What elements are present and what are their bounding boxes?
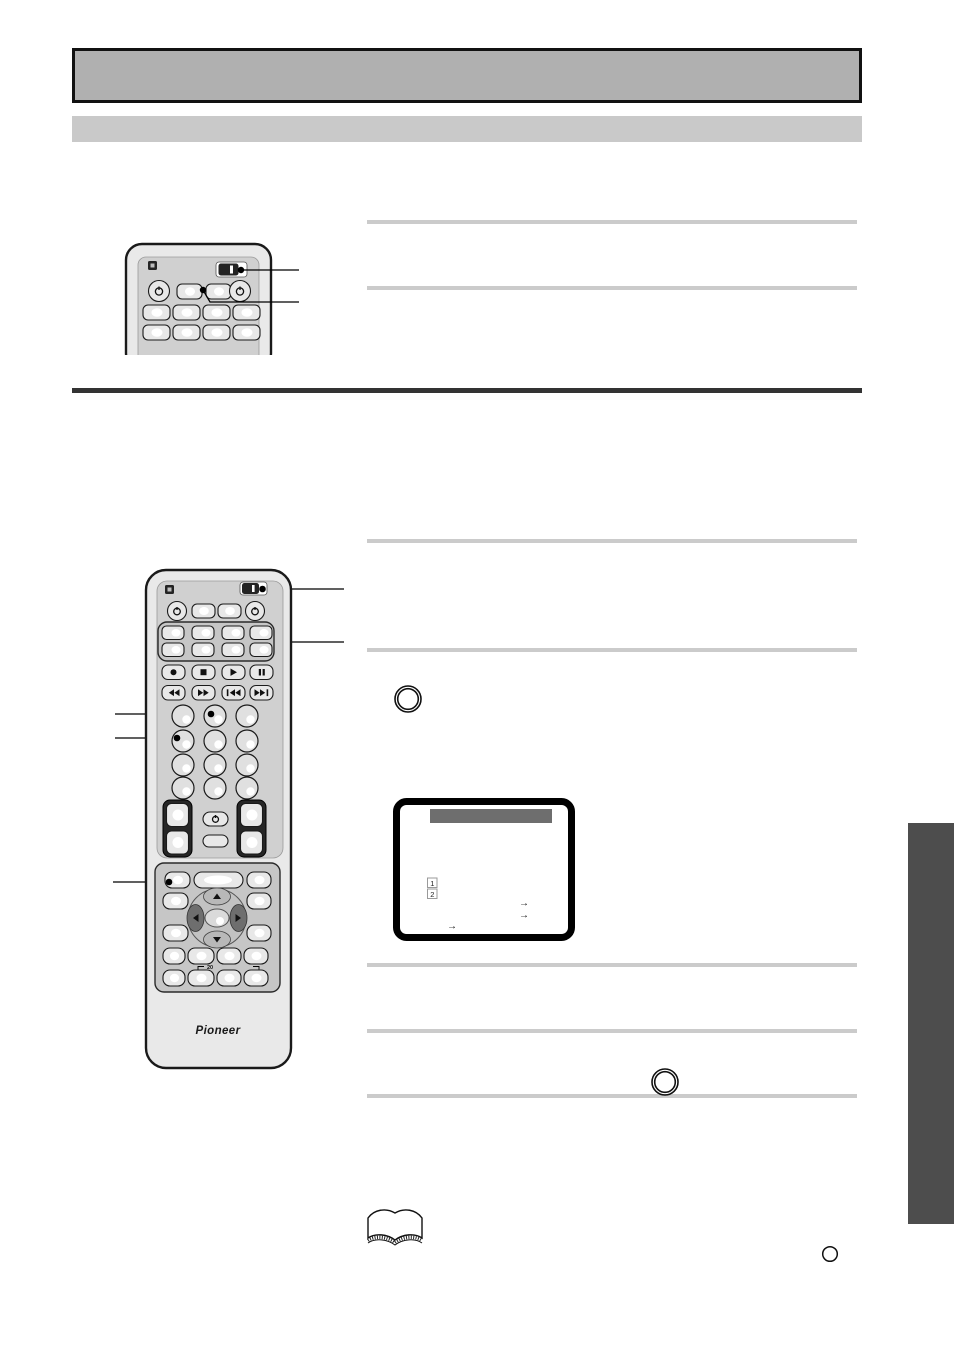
- open-book-icon: [362, 1203, 434, 1255]
- record-button: [162, 665, 185, 680]
- power-button-small: [203, 812, 228, 826]
- stop-icon: [201, 669, 207, 675]
- rewind-button: [162, 686, 185, 701]
- power-button: [230, 281, 251, 302]
- callout-dot: [208, 711, 215, 718]
- side-button-right: [247, 925, 271, 941]
- power-button: [246, 602, 265, 621]
- osd-arrow-icon: →: [519, 898, 529, 909]
- callout-dot: [238, 267, 244, 273]
- dpad-enter-button: [205, 909, 229, 927]
- side-button-left: [163, 893, 188, 909]
- guide-button-wide: [194, 872, 243, 888]
- manual-page: 20 Pioneer 1 2 → → →: [0, 0, 954, 1348]
- text-rule: [367, 1094, 857, 1098]
- section-divider: [72, 388, 862, 393]
- callout-dot: [174, 735, 181, 742]
- stop-button: [192, 665, 215, 680]
- device-select-button: [206, 284, 231, 299]
- mute-button: [203, 835, 228, 847]
- osd-menu-bar: [430, 809, 552, 823]
- device-select-button: [192, 604, 215, 618]
- skip-back-button: [222, 686, 245, 701]
- text-rule: [367, 220, 857, 224]
- svg-text:1: 1: [430, 879, 434, 888]
- skip-forward-button: [250, 686, 273, 701]
- tv-screen-illustration: 1 2 → → →: [390, 795, 585, 950]
- section-subtitle-bar: [72, 116, 862, 142]
- device-select-button: [218, 604, 241, 618]
- remote-full-illustration: 20 Pioneer: [108, 565, 348, 1075]
- volume-rocker: [163, 800, 192, 857]
- osd-arrow-icon: →: [447, 921, 457, 932]
- step-number-circle: [393, 684, 423, 714]
- text-rule: [367, 1029, 857, 1033]
- callout-dot: [259, 586, 266, 593]
- brand-logo: Pioneer: [196, 1025, 241, 1037]
- exit-button: [247, 872, 271, 888]
- side-button-right: [247, 893, 271, 909]
- record-icon: [171, 669, 177, 675]
- text-rule: [367, 648, 857, 652]
- power-button: [168, 602, 187, 621]
- osd-list-item-1: 1: [428, 878, 438, 888]
- osd-arrow-icon: →: [519, 910, 529, 921]
- pause-button: [250, 665, 273, 680]
- power-button: [149, 281, 170, 302]
- tv-logo-icon: [165, 585, 174, 594]
- tv-logo-icon: [148, 261, 157, 270]
- step-number-circle: [650, 1067, 680, 1097]
- page-title-box: [72, 48, 862, 103]
- play-button: [222, 665, 245, 680]
- osd-list-item-2: 2: [428, 889, 438, 899]
- chapter-side-tab: [908, 823, 954, 1224]
- text-rule: [367, 286, 857, 290]
- text-rule: [367, 539, 857, 543]
- fast-forward-button: [192, 686, 215, 701]
- callout-dot: [166, 879, 173, 886]
- number-button-pad: [172, 705, 258, 799]
- device-select-button: [177, 284, 202, 299]
- channel-rocker: [237, 800, 266, 857]
- remote-top-illustration: [110, 240, 310, 355]
- page-number-circle: [821, 1245, 839, 1263]
- side-button-left: [163, 925, 188, 941]
- text-rule: [367, 963, 857, 967]
- svg-text:2: 2: [430, 890, 434, 899]
